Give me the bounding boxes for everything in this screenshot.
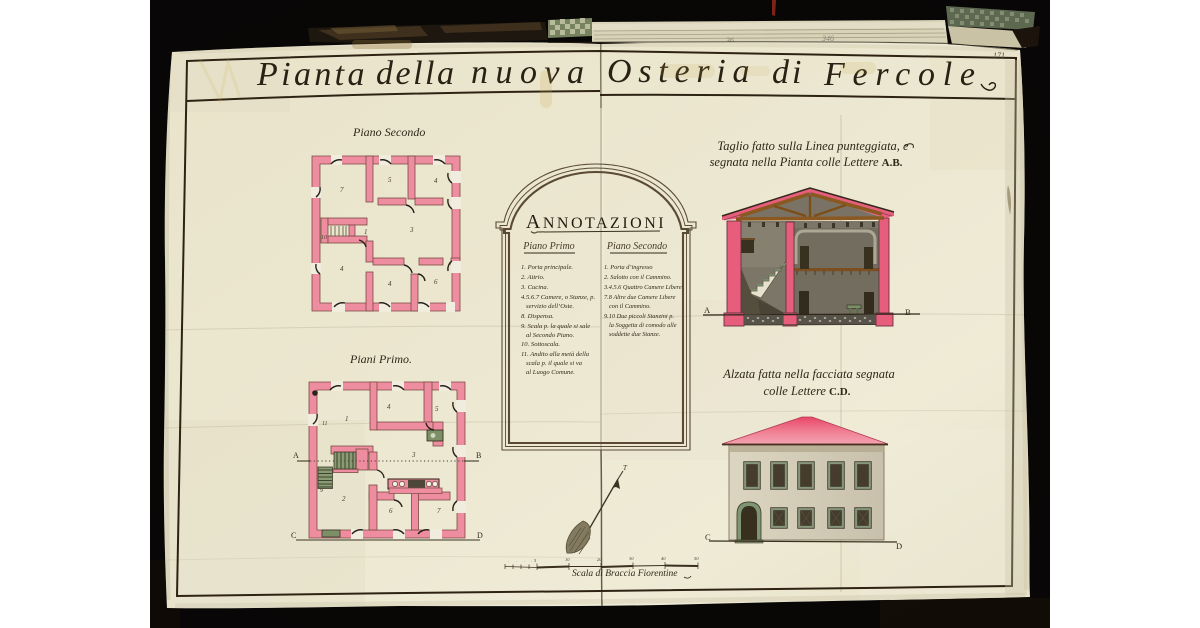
svg-text:3.4.5.6 Quattro Camere Libere: 3.4.5.6 Quattro Camere Libere [603,284,682,291]
svg-text:di: di [772,54,804,91]
svg-text:.: . [516,558,517,563]
svg-text:Piano Primo: Piano Primo [522,241,574,252]
svg-text:al Secondo Piano.: al Secondo Piano. [526,332,575,339]
svg-text:11. Andito alla metà della: 11. Andito alla metà della [521,351,590,358]
svg-text:1: 1 [345,415,349,423]
svg-text:D: D [896,541,902,551]
svg-text:10. Sottoscala.: 10. Sottoscala. [521,341,560,348]
svg-text:soddette due Stanze.: soddette due Stanze. [609,331,660,338]
svg-text:3. Cucina.: 3. Cucina. [520,284,549,291]
svg-text:D: D [477,531,483,540]
svg-text:Scala di Braccia Fiorentine: Scala di Braccia Fiorentine [572,569,677,579]
svg-text:Fercole: Fercole [823,56,979,93]
svg-text:50: 50 [694,556,699,561]
svg-text:Piano Secondo: Piano Secondo [606,241,667,252]
svg-text:.: . [508,558,509,563]
svg-text:8. Dispensa.: 8. Dispensa. [521,313,554,320]
svg-text:20: 20 [597,557,602,562]
svg-text:1: 1 [364,228,368,236]
svg-text:C: C [291,531,296,540]
svg-text:4: 4 [434,177,438,185]
svg-text:al Luogo Comune.: al Luogo Comune. [526,369,575,376]
svg-text:1. Porta principale.: 1. Porta principale. [521,264,573,271]
svg-text:5: 5 [435,405,439,413]
svg-text:la Soggetta di comodo alle: la Soggetta di comodo alle [609,322,677,329]
svg-text:servizio dell’Oste.: servizio dell’Oste. [526,303,574,310]
svg-text:4: 4 [388,280,392,288]
svg-text:A: A [293,451,299,460]
svg-text:11: 11 [322,421,328,427]
svg-text:colle Lettere C.D.: colle Lettere C.D. [764,384,851,398]
svg-text:4.5.6.7 Camere, o Stanze, p.: 4.5.6.7 Camere, o Stanze, p. [521,294,595,301]
svg-text:scala p. il quale si va: scala p. il quale si va [526,360,583,367]
svg-text:Piani Primo.: Piani Primo. [349,352,412,366]
svg-text:della: della [376,55,456,92]
svg-text:C: C [705,532,711,542]
svg-text:10: 10 [321,235,327,241]
svg-text:40: 40 [661,556,666,561]
svg-text:Taglio fatto sulla Linea punte: Taglio fatto sulla Linea punteggiata, e [717,139,909,153]
svg-text:4: 4 [387,403,391,411]
svg-text:2. Salotto con il Cammino.: 2. Salotto con il Cammino. [604,274,672,281]
svg-text:B: B [905,307,911,317]
svg-text:ANNOTAZIONI: ANNOTAZIONI [526,211,666,233]
svg-text:segnata nella Pianta colle Let: segnata nella Pianta colle Lettere A.B. [710,155,903,169]
svg-text:9. Scala p. la quale si sale: 9. Scala p. la quale si sale [521,323,590,330]
svg-text:7.8 Altre due Camere Libere: 7.8 Altre due Camere Libere [604,294,676,301]
svg-text:con il Cammino.: con il Cammino. [609,303,651,310]
svg-text:.: . [524,558,525,563]
svg-text:Pianta: Pianta [256,56,367,93]
svg-text:9: 9 [320,488,323,494]
svg-text:3: 3 [409,226,414,234]
svg-text:30: 30 [629,556,634,561]
svg-text:Piano Secondo: Piano Secondo [352,125,425,139]
svg-text:171: 171 [993,51,1005,60]
svg-text:A: A [704,305,711,315]
svg-text:6: 6 [389,507,393,515]
svg-text:Alzata fatta nella facciata se: Alzata fatta nella facciata segnata [722,367,895,381]
svg-text:7: 7 [340,186,344,194]
svg-text:7: 7 [437,507,441,515]
svg-text:6: 6 [434,278,438,286]
svg-text:4: 4 [340,265,344,273]
svg-text:10: 10 [565,557,570,562]
svg-text:1. Porta d’ingresso: 1. Porta d’ingresso [604,264,653,271]
svg-text:2. Aitrio.: 2. Aitrio. [521,274,545,281]
svg-text:3: 3 [411,451,416,459]
svg-text:9.10 Due piccoli Stanzini p.: 9.10 Due piccoli Stanzini p. [604,313,674,320]
svg-text:.: . [531,558,532,563]
svg-text:5: 5 [388,176,392,184]
svg-text:B: B [476,451,481,460]
svg-text:nuova: nuova [471,54,588,91]
svg-text:2: 2 [342,495,346,503]
